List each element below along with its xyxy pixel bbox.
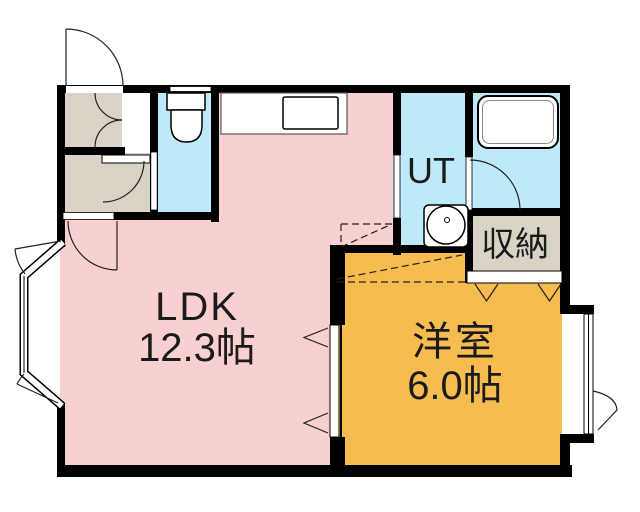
- bay-window: [15, 241, 63, 406]
- kitchen-counter-icon: [221, 93, 347, 134]
- storage-label: 収納: [481, 226, 549, 264]
- bathtub-icon: [478, 96, 558, 148]
- utility-door: [394, 155, 400, 218]
- entrance-opening: [66, 86, 123, 93]
- ldk-area-label: 12.3帖: [138, 326, 256, 370]
- toilet-icon: [167, 93, 205, 142]
- ldk-western-sliding-door: [330, 325, 339, 437]
- floorplan-page: LDK 12.3帖 洋室 6.0帖 UT 収納: [0, 0, 640, 512]
- western-room-area-label: 6.0帖: [407, 364, 503, 408]
- entrance-door-arc: [66, 29, 123, 86]
- western-room-label: 洋室: [412, 320, 498, 364]
- bathroom-door-opening: [466, 157, 472, 210]
- entry-ldk-opening: [63, 213, 114, 220]
- storage-folding-door: [467, 271, 562, 283]
- floor-plan: LDK 12.3帖 洋室 6.0帖 UT 収納: [0, 0, 640, 512]
- toilet-window: [170, 87, 211, 92]
- toilet-door: [151, 152, 157, 210]
- wash-basin-icon: [424, 205, 468, 247]
- entry-hall-floor: [122, 93, 152, 153]
- utility-label: UT: [407, 150, 455, 191]
- hall-door-leaf: [102, 155, 150, 163]
- kitchen-sink-icon: [283, 97, 338, 129]
- outswing-door-arc: [593, 391, 617, 430]
- ldk-label: LDK: [155, 285, 239, 329]
- right-window: [584, 314, 617, 434]
